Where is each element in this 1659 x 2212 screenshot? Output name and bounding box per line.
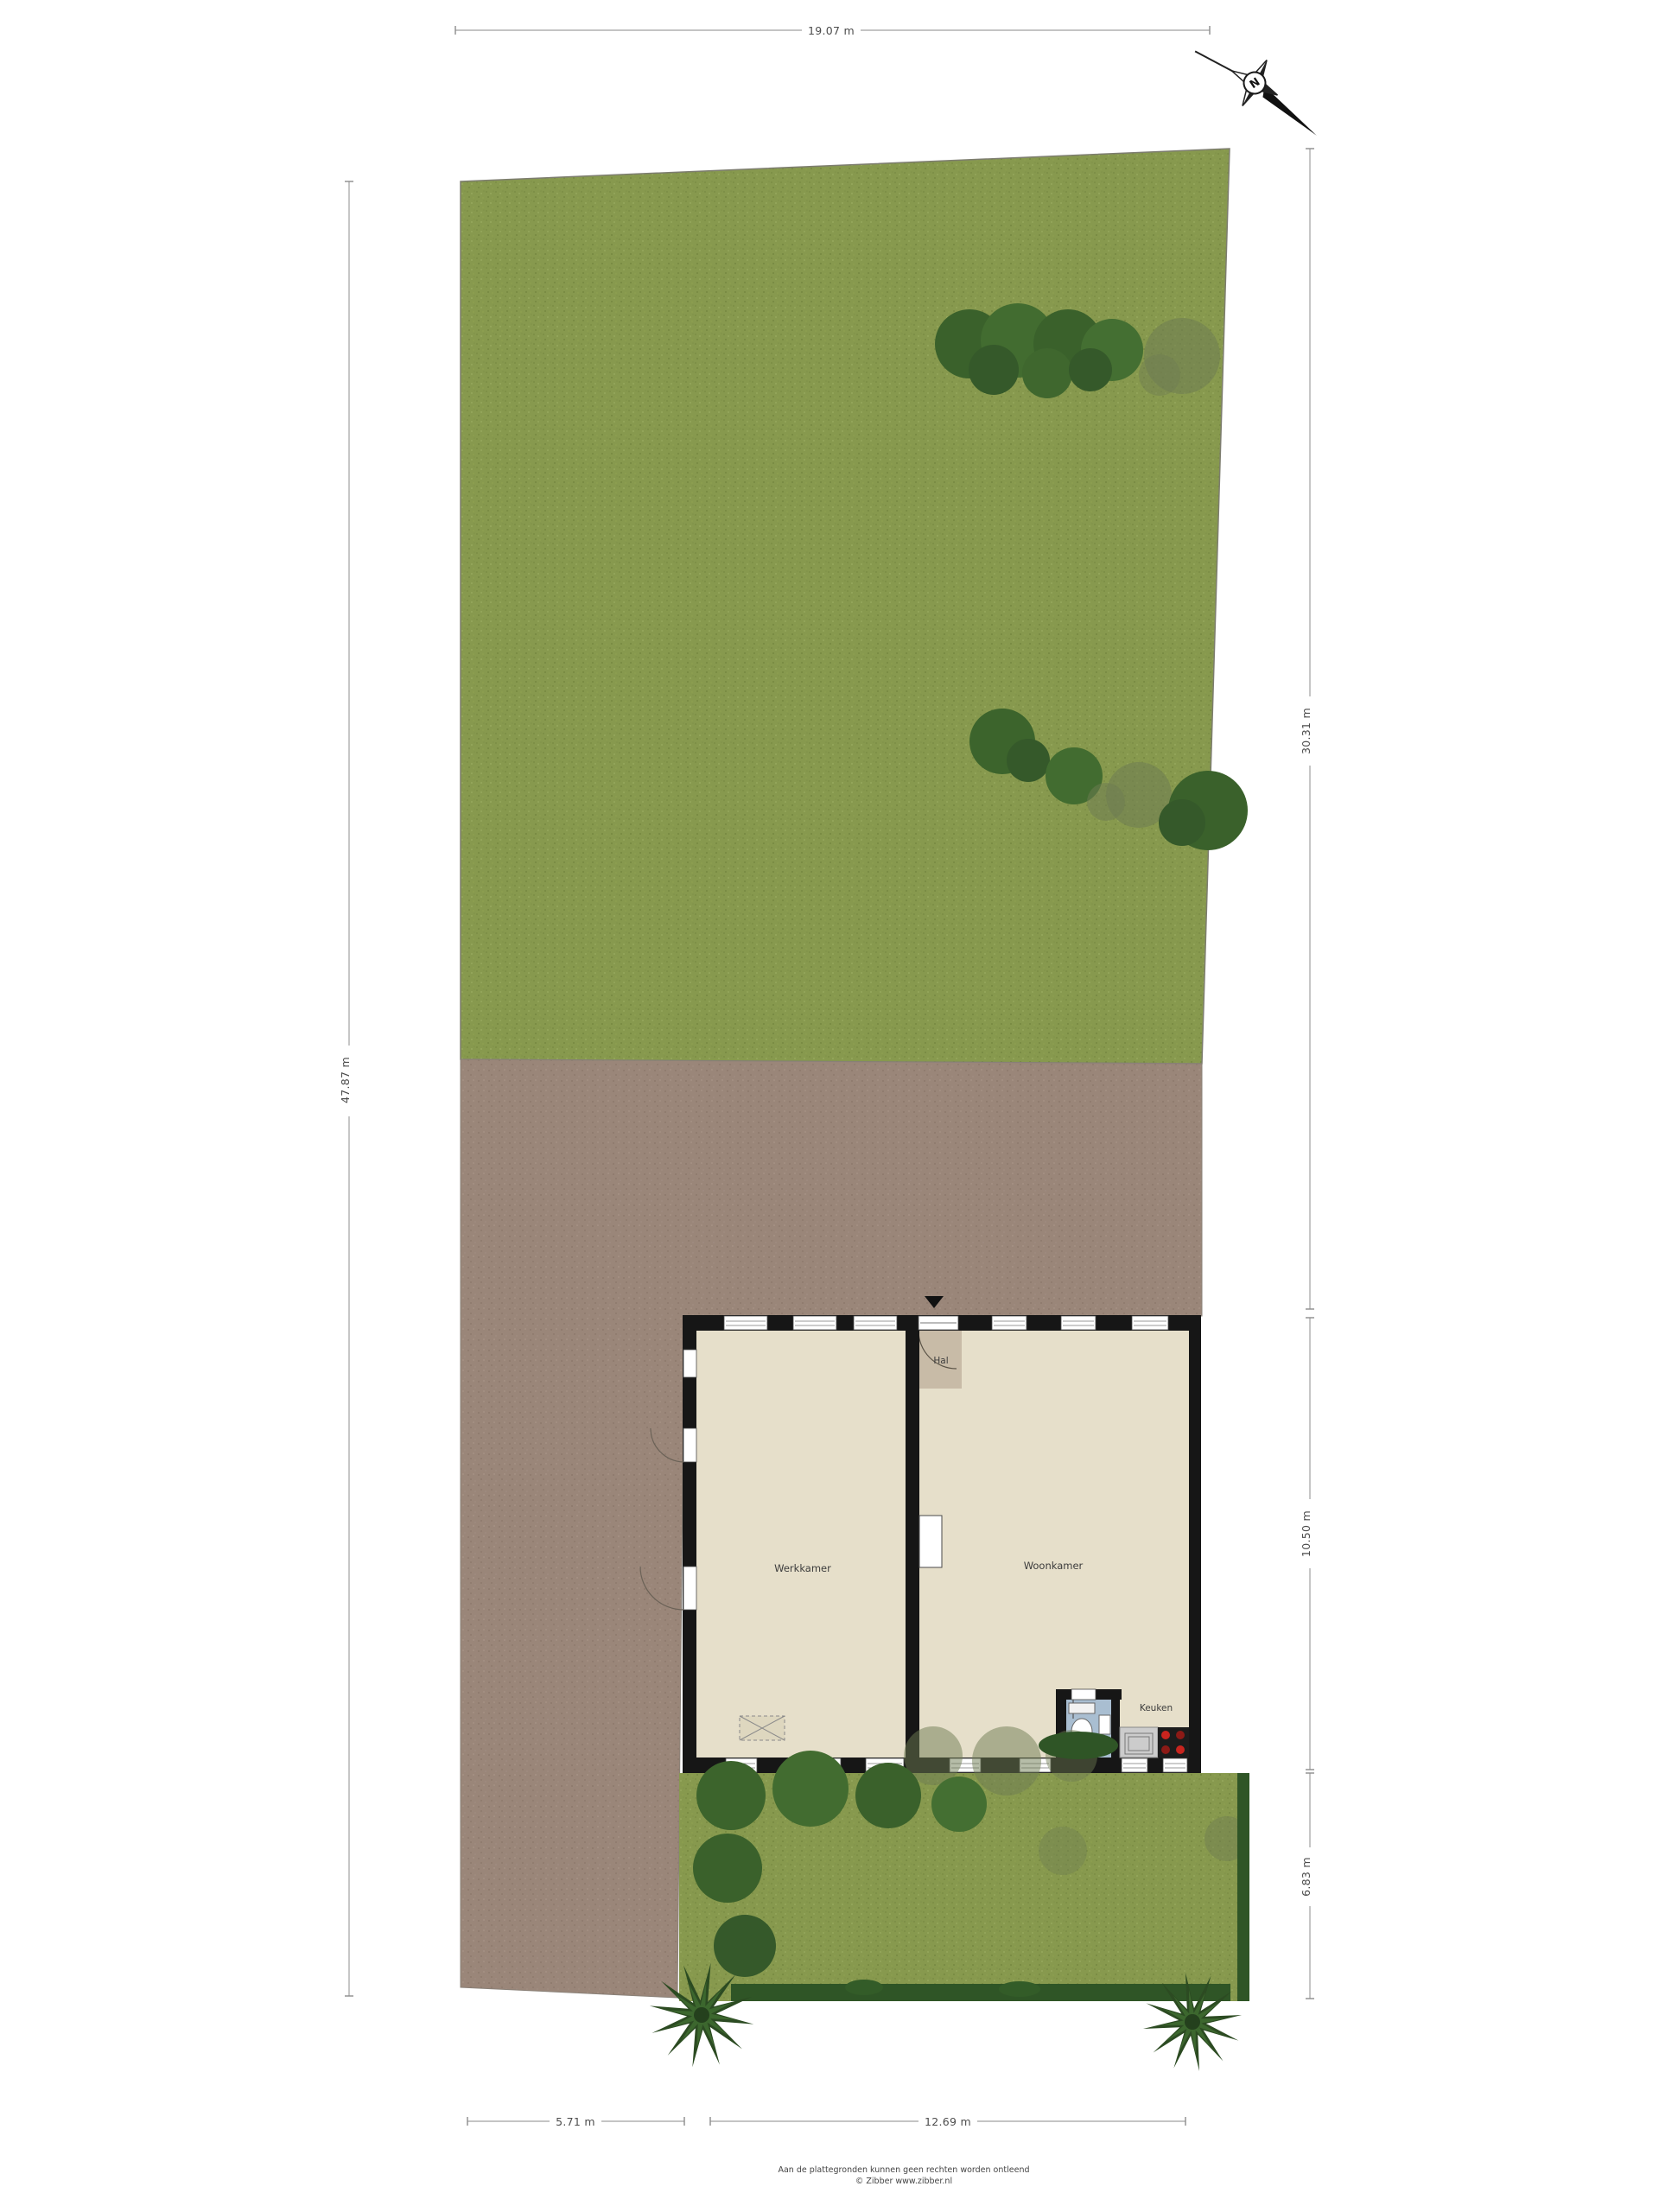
footer-credit: © Zibber www.zibber.nl	[855, 2177, 952, 2186]
dim-label-bottom-left: 5.71 m	[556, 2115, 595, 2128]
tree	[855, 1763, 921, 1828]
room-werkkamer-floor	[696, 1331, 906, 1758]
kitchen-fixtures	[1120, 1727, 1189, 1758]
window	[683, 1350, 696, 1377]
dimension-bottom-right: 12.69 m	[710, 2114, 1185, 2128]
site-plan-drawing: Werkkamer Woonkamer Hal Keuken	[0, 0, 1659, 2212]
tree	[1022, 348, 1072, 398]
hedge-bump	[999, 1981, 1040, 1997]
dim-label-left: 47.87 m	[339, 1057, 352, 1103]
window	[1132, 1316, 1168, 1330]
tree-faded	[1039, 1827, 1087, 1875]
tree	[931, 1777, 987, 1832]
dimension-right-lower: 6.83 m	[1300, 1773, 1317, 1999]
window	[1163, 1758, 1187, 1772]
window	[793, 1316, 836, 1330]
tree	[969, 345, 1019, 395]
cooktop	[1158, 1727, 1189, 1758]
burner	[1161, 1731, 1170, 1739]
hedge-under-kitchen	[1039, 1732, 1118, 1759]
internal-wall-upper	[906, 1331, 919, 1517]
burner	[1176, 1745, 1185, 1754]
dim-label-right-middle: 10.50 m	[1300, 1510, 1313, 1557]
dim-label-right-upper: 30.31 m	[1300, 708, 1313, 754]
room-label-hal: Hal	[933, 1356, 948, 1366]
footer-disclaimer: Aan de plattegronden kunnen geen rechten…	[778, 2165, 1029, 2175]
burner	[1161, 1745, 1170, 1754]
dimension-right-middle: 10.50 m	[1300, 1318, 1317, 1770]
toilet-sink	[1099, 1715, 1110, 1734]
dimension-right-upper: 30.31 m	[1300, 149, 1317, 1309]
tree-faded	[972, 1726, 1041, 1796]
toilet-tank	[1069, 1703, 1095, 1713]
door	[683, 1428, 696, 1462]
window	[1122, 1758, 1147, 1772]
window	[854, 1316, 897, 1330]
tree	[693, 1834, 762, 1903]
werkkamer-void-box	[740, 1716, 785, 1740]
dim-label-right-lower: 6.83 m	[1300, 1857, 1313, 1897]
dimension-left: 47.87 m	[339, 181, 356, 1996]
tree-faded	[1139, 354, 1180, 396]
room-woonkamer-floor	[919, 1331, 1189, 1758]
grass-field	[461, 149, 1230, 1064]
compass-icon: N	[1183, 29, 1337, 143]
burner	[1176, 1731, 1185, 1739]
room-label-woonkamer: Woonkamer	[1024, 1560, 1084, 1572]
door	[683, 1567, 696, 1610]
internal-wall-lower	[906, 1566, 919, 1758]
tree	[1069, 348, 1112, 391]
tree	[714, 1915, 776, 1977]
internal-door-leaf	[919, 1516, 942, 1567]
window	[992, 1316, 1027, 1330]
building: Werkkamer Woonkamer Hal Keuken	[640, 1296, 1201, 1773]
footer: Aan de plattegronden kunnen geen rechten…	[778, 2165, 1029, 2186]
site-plan-page: Werkkamer Woonkamer Hal Keuken	[0, 0, 1659, 2212]
room-label-keuken: Keuken	[1140, 1703, 1173, 1713]
dim-label-bottom-right: 12.69 m	[925, 2115, 971, 2128]
tree	[696, 1761, 766, 1830]
tree	[1159, 799, 1205, 846]
dimension-bottom-left: 5.71 m	[467, 2114, 684, 2128]
hedge-bottom	[731, 1984, 1230, 2001]
hedge-bump	[845, 1980, 883, 1995]
window	[724, 1316, 767, 1330]
room-label-werkkamer: Werkkamer	[774, 1562, 831, 1574]
hedge-right	[1237, 1773, 1249, 2001]
tree	[1007, 739, 1050, 782]
dimension-top: 19.07 m	[455, 23, 1210, 37]
closet-door	[1071, 1689, 1096, 1700]
kitchen-counter	[1120, 1727, 1158, 1758]
dim-label-top: 19.07 m	[808, 24, 855, 37]
tree	[772, 1751, 849, 1827]
window	[1061, 1316, 1096, 1330]
